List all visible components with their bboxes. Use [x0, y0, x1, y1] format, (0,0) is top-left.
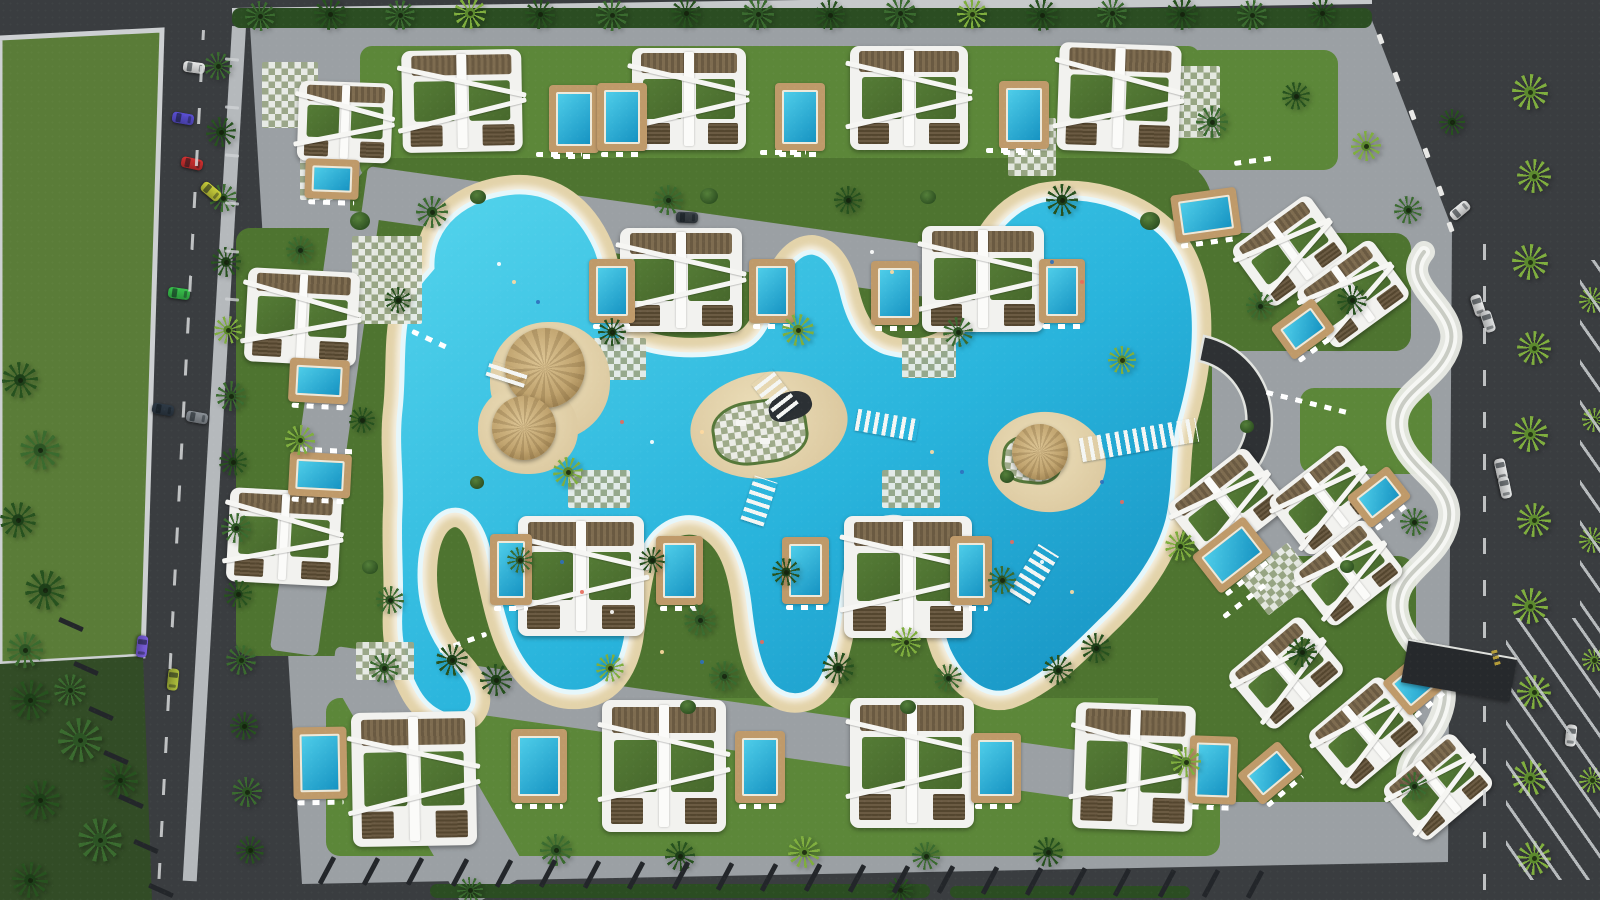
- villa-building: [518, 516, 644, 636]
- palm-tree-icon: [891, 627, 921, 657]
- sun-loungers: [298, 800, 344, 806]
- private-pool: [1178, 195, 1234, 236]
- palm-tree-icon: [834, 186, 862, 214]
- patio-furniture: [736, 420, 746, 426]
- pool-deck: [999, 81, 1049, 149]
- swimmer-dot: [1010, 540, 1014, 544]
- swimmer-dot: [1100, 480, 1104, 484]
- villa-roof-spine: [659, 705, 669, 826]
- pool-deck: [1039, 259, 1085, 323]
- private-pool: [299, 734, 340, 793]
- villa-roof-wood-deck: [301, 561, 331, 581]
- swimmer-dot: [960, 470, 964, 474]
- palm-tree-icon: [216, 381, 246, 411]
- palm-tree-icon: [525, 0, 555, 29]
- palm-tree-icon: [653, 185, 683, 215]
- villa-roof-spine: [904, 50, 913, 146]
- private-pool: [663, 543, 696, 598]
- sun-loungers: [739, 804, 781, 809]
- private-pool: [978, 740, 1014, 796]
- villa-roof-spine: [978, 230, 988, 328]
- villa-roof-wood-deck: [527, 605, 560, 629]
- palm-tree-icon: [709, 661, 739, 691]
- private-pool: [1195, 742, 1231, 797]
- sun-loungers: [601, 152, 643, 157]
- palm-tree-icon: [226, 645, 256, 675]
- palm-tree-icon: [1439, 109, 1465, 135]
- palm-tree-icon: [2, 362, 38, 398]
- villa-roof-wood-deck: [1080, 795, 1112, 821]
- swimmer-dot: [1050, 260, 1054, 264]
- palm-tree-icon: [7, 632, 43, 668]
- villa-roof-wood-deck: [685, 798, 717, 824]
- villa-roof-wood-deck: [858, 123, 889, 144]
- palm-tree-icon: [224, 580, 252, 608]
- villa-roof-wood-deck: [1004, 304, 1036, 325]
- villa-roof-wood-deck: [436, 810, 469, 837]
- villa-roof-wood-deck: [853, 606, 886, 630]
- villa-building: [850, 46, 968, 150]
- parked-car: [135, 635, 148, 658]
- palm-tree-icon: [988, 566, 1016, 594]
- villa-roof-spine: [576, 521, 586, 631]
- pool-deck: [288, 357, 350, 404]
- palm-tree-icon: [1512, 416, 1548, 452]
- pool-deck: [735, 731, 785, 803]
- private-pool: [878, 268, 912, 318]
- pool-deck: [589, 259, 635, 323]
- villa-building: [244, 267, 361, 367]
- private-pool: [295, 365, 343, 397]
- palm-tree-icon: [285, 425, 315, 455]
- bush-icon: [470, 476, 484, 489]
- pool-deck: [288, 451, 352, 498]
- palm-tree-icon: [1046, 184, 1078, 216]
- palm-tree-icon: [1400, 508, 1428, 536]
- palm-tree-icon: [598, 318, 626, 346]
- villa-roof-wood-deck: [361, 812, 394, 839]
- swimmer-dot: [1040, 560, 1044, 564]
- road-center-dashes: [1483, 230, 1486, 890]
- villa-building: [351, 711, 477, 847]
- palm-tree-icon: [553, 457, 583, 487]
- swimmer-dot: [610, 610, 614, 614]
- palm-tree-icon: [815, 0, 845, 30]
- tile-patch: [352, 236, 422, 324]
- villa-roof-wood-deck: [1152, 798, 1184, 824]
- palm-tree-icon: [772, 558, 800, 586]
- palm-tree-icon: [596, 0, 628, 31]
- villa-roof-wood-deck: [360, 142, 385, 159]
- swimmer-dot: [700, 660, 704, 664]
- swimmer-dot: [1120, 500, 1124, 504]
- patio-furniture: [760, 438, 770, 444]
- palm-tree-icon: [232, 777, 262, 807]
- sun-loungers: [954, 606, 988, 611]
- pool-deck: [749, 259, 795, 323]
- pool-deck: [871, 261, 919, 325]
- palm-tree-icon: [78, 818, 122, 862]
- pool-deck: [1170, 187, 1242, 244]
- palm-tree-icon: [1287, 637, 1317, 667]
- tile-patch: [882, 470, 940, 508]
- private-pool: [295, 459, 345, 491]
- palm-tree-icon: [822, 652, 854, 684]
- palm-tree-icon: [1171, 747, 1201, 777]
- thatch-umbrella: [492, 396, 556, 460]
- villa-roof-wood-deck: [319, 341, 349, 361]
- villa-building: [632, 48, 746, 150]
- swimmer-dot: [760, 640, 764, 644]
- villa-roof-wood-deck: [859, 794, 891, 820]
- villa-roof-wood-deck: [602, 605, 635, 629]
- pool-deck: [511, 729, 567, 803]
- villa-roof-wood-deck: [483, 125, 515, 146]
- sun-loungers: [1043, 324, 1081, 329]
- villa-building: [297, 80, 394, 163]
- palm-tree-icon: [912, 842, 940, 870]
- palm-tree-icon: [639, 547, 665, 573]
- swimmer-dot: [870, 250, 874, 254]
- palm-tree-icon: [1081, 633, 1111, 663]
- villa-roof-wood-deck: [1138, 125, 1170, 148]
- palm-tree-icon: [1512, 244, 1548, 280]
- palm-tree-icon: [480, 664, 512, 696]
- palm-tree-icon: [54, 674, 86, 706]
- swimmer-dot: [900, 430, 904, 434]
- villa-roof-spine: [676, 232, 686, 328]
- palm-tree-icon: [1351, 131, 1381, 161]
- villa-roof-wood-deck: [611, 798, 643, 824]
- palm-tree-icon: [20, 780, 60, 820]
- palm-tree-icon: [376, 586, 404, 614]
- parked-car: [676, 212, 698, 224]
- private-pool: [742, 738, 778, 796]
- swimmer-dot: [620, 420, 624, 424]
- palm-tree-icon: [219, 448, 247, 476]
- palm-tree-icon: [665, 841, 695, 871]
- palm-tree-icon: [1043, 655, 1073, 685]
- pool-deck: [597, 83, 647, 151]
- swimmer-dot: [660, 650, 664, 654]
- sun-loungers: [875, 326, 915, 331]
- pool-deck: [971, 733, 1021, 803]
- villa-roof-garden: [857, 553, 901, 602]
- palm-tree-icon: [1246, 292, 1274, 320]
- swimmer-dot: [700, 430, 704, 434]
- villa-building: [620, 228, 742, 332]
- pool-deck: [950, 536, 992, 605]
- palm-tree-icon: [934, 664, 962, 692]
- palm-tree-icon: [1026, 0, 1058, 31]
- pool-deck: [549, 85, 599, 153]
- palm-tree-icon: [214, 316, 242, 344]
- palm-tree-icon: [416, 196, 448, 228]
- palm-tree-icon: [684, 604, 716, 636]
- palm-tree-icon: [1400, 772, 1428, 800]
- resort-aerial-render: [0, 0, 1600, 900]
- palm-tree-icon: [20, 430, 60, 470]
- palm-tree-icon: [782, 314, 814, 346]
- palm-tree-icon: [596, 654, 624, 682]
- green-field: [0, 30, 162, 664]
- palm-tree-icon: [1282, 82, 1310, 110]
- pool-deck: [775, 83, 825, 151]
- swimmer-dot: [890, 270, 894, 274]
- private-pool: [604, 90, 640, 144]
- swimmer-dot: [1070, 590, 1074, 594]
- swimmer-dot: [650, 440, 654, 444]
- private-pool: [1046, 266, 1078, 316]
- villa-roof-spine: [456, 54, 467, 148]
- villa-roof-wood-deck: [933, 794, 965, 820]
- villa-building: [922, 226, 1044, 332]
- bush-icon: [1240, 420, 1254, 433]
- bush-icon: [350, 212, 370, 230]
- swimmer-dot: [930, 450, 934, 454]
- private-pool: [518, 736, 560, 796]
- thatch-umbrella: [1012, 424, 1068, 480]
- palm-tree-icon: [1512, 74, 1548, 110]
- villa-building: [401, 49, 523, 153]
- bush-icon: [1000, 470, 1014, 483]
- palm-tree-icon: [1237, 0, 1267, 30]
- bush-icon: [1140, 212, 1160, 230]
- pool-deck: [656, 536, 703, 605]
- sun-loungers: [515, 804, 563, 809]
- palm-tree-icon: [1196, 106, 1228, 138]
- sun-loungers: [494, 606, 528, 611]
- palm-tree-icon: [221, 513, 251, 543]
- villa-roof-spine: [684, 52, 693, 146]
- palm-tree-icon: [457, 877, 483, 900]
- palm-tree-icon: [206, 117, 236, 147]
- villa-roof-wood-deck: [708, 123, 738, 143]
- villa-roof-spine: [907, 703, 917, 823]
- swimmer-dot: [1080, 280, 1084, 284]
- palm-tree-icon: [58, 718, 102, 762]
- palm-tree-icon: [102, 762, 138, 798]
- palm-tree-icon: [788, 836, 820, 868]
- villa-roof-garden: [934, 258, 975, 300]
- palm-tree-icon: [943, 317, 973, 347]
- swimmer-dot: [560, 560, 564, 564]
- palm-tree-icon: [369, 653, 399, 683]
- private-pool: [756, 266, 788, 316]
- palm-tree-icon: [349, 407, 375, 433]
- swimmer-dot: [536, 300, 540, 304]
- palm-tree-icon: [1394, 196, 1422, 224]
- palm-tree-icon: [0, 502, 36, 538]
- palm-tree-icon: [1337, 285, 1367, 315]
- palm-tree-icon: [1165, 531, 1195, 561]
- sun-lounger-row: [760, 150, 806, 155]
- palm-tree-icon: [1308, 0, 1336, 27]
- palm-tree-icon: [957, 0, 987, 29]
- sun-loungers: [786, 605, 825, 610]
- palm-tree-icon: [385, 0, 415, 30]
- palm-tree-icon: [507, 547, 533, 573]
- private-pool: [957, 543, 985, 598]
- palm-tree-icon: [10, 680, 50, 720]
- sun-loungers: [975, 804, 1017, 809]
- private-pool: [596, 266, 628, 316]
- sun-lounger-row: [536, 152, 582, 157]
- palm-tree-icon: [25, 570, 65, 610]
- villa-roof-wood-deck: [929, 123, 960, 144]
- villa-building: [1056, 42, 1182, 154]
- villa-roof-wood-deck: [702, 305, 734, 326]
- palm-tree-icon: [230, 712, 258, 740]
- villa-roof-spine: [1112, 48, 1125, 148]
- palm-tree-icon: [236, 836, 264, 864]
- swimmer-dot: [580, 590, 584, 594]
- palm-tree-icon: [1033, 837, 1063, 867]
- villa-building: [850, 698, 974, 828]
- swimmer-dot: [512, 280, 516, 284]
- swimmer-dot: [497, 262, 501, 266]
- palm-tree-icon: [204, 52, 232, 80]
- sun-lounger-row: [986, 148, 1032, 153]
- private-pool: [556, 92, 592, 146]
- bush-icon: [1340, 560, 1354, 573]
- palm-tree-icon: [1517, 331, 1551, 365]
- private-pool: [1006, 88, 1042, 142]
- palm-tree-icon: [436, 644, 468, 676]
- parking-stripes: [1580, 260, 1600, 640]
- private-pool: [782, 90, 818, 144]
- pool-deck: [292, 727, 347, 800]
- pool-deck: [304, 158, 359, 200]
- villa-roof-spine: [340, 85, 350, 159]
- palm-tree-icon: [1517, 503, 1551, 537]
- palm-tree-icon: [245, 1, 275, 31]
- palm-tree-icon: [286, 236, 314, 264]
- palm-tree-icon: [12, 862, 48, 898]
- villa-roof-spine: [903, 521, 913, 633]
- villa-building: [602, 700, 726, 832]
- parking-stripes: [1506, 618, 1600, 880]
- palm-tree-icon: [1108, 346, 1136, 374]
- palm-tree-icon: [1517, 159, 1551, 193]
- tile-patch: [902, 338, 956, 378]
- palm-tree-icon: [385, 287, 411, 313]
- private-pool: [312, 165, 353, 192]
